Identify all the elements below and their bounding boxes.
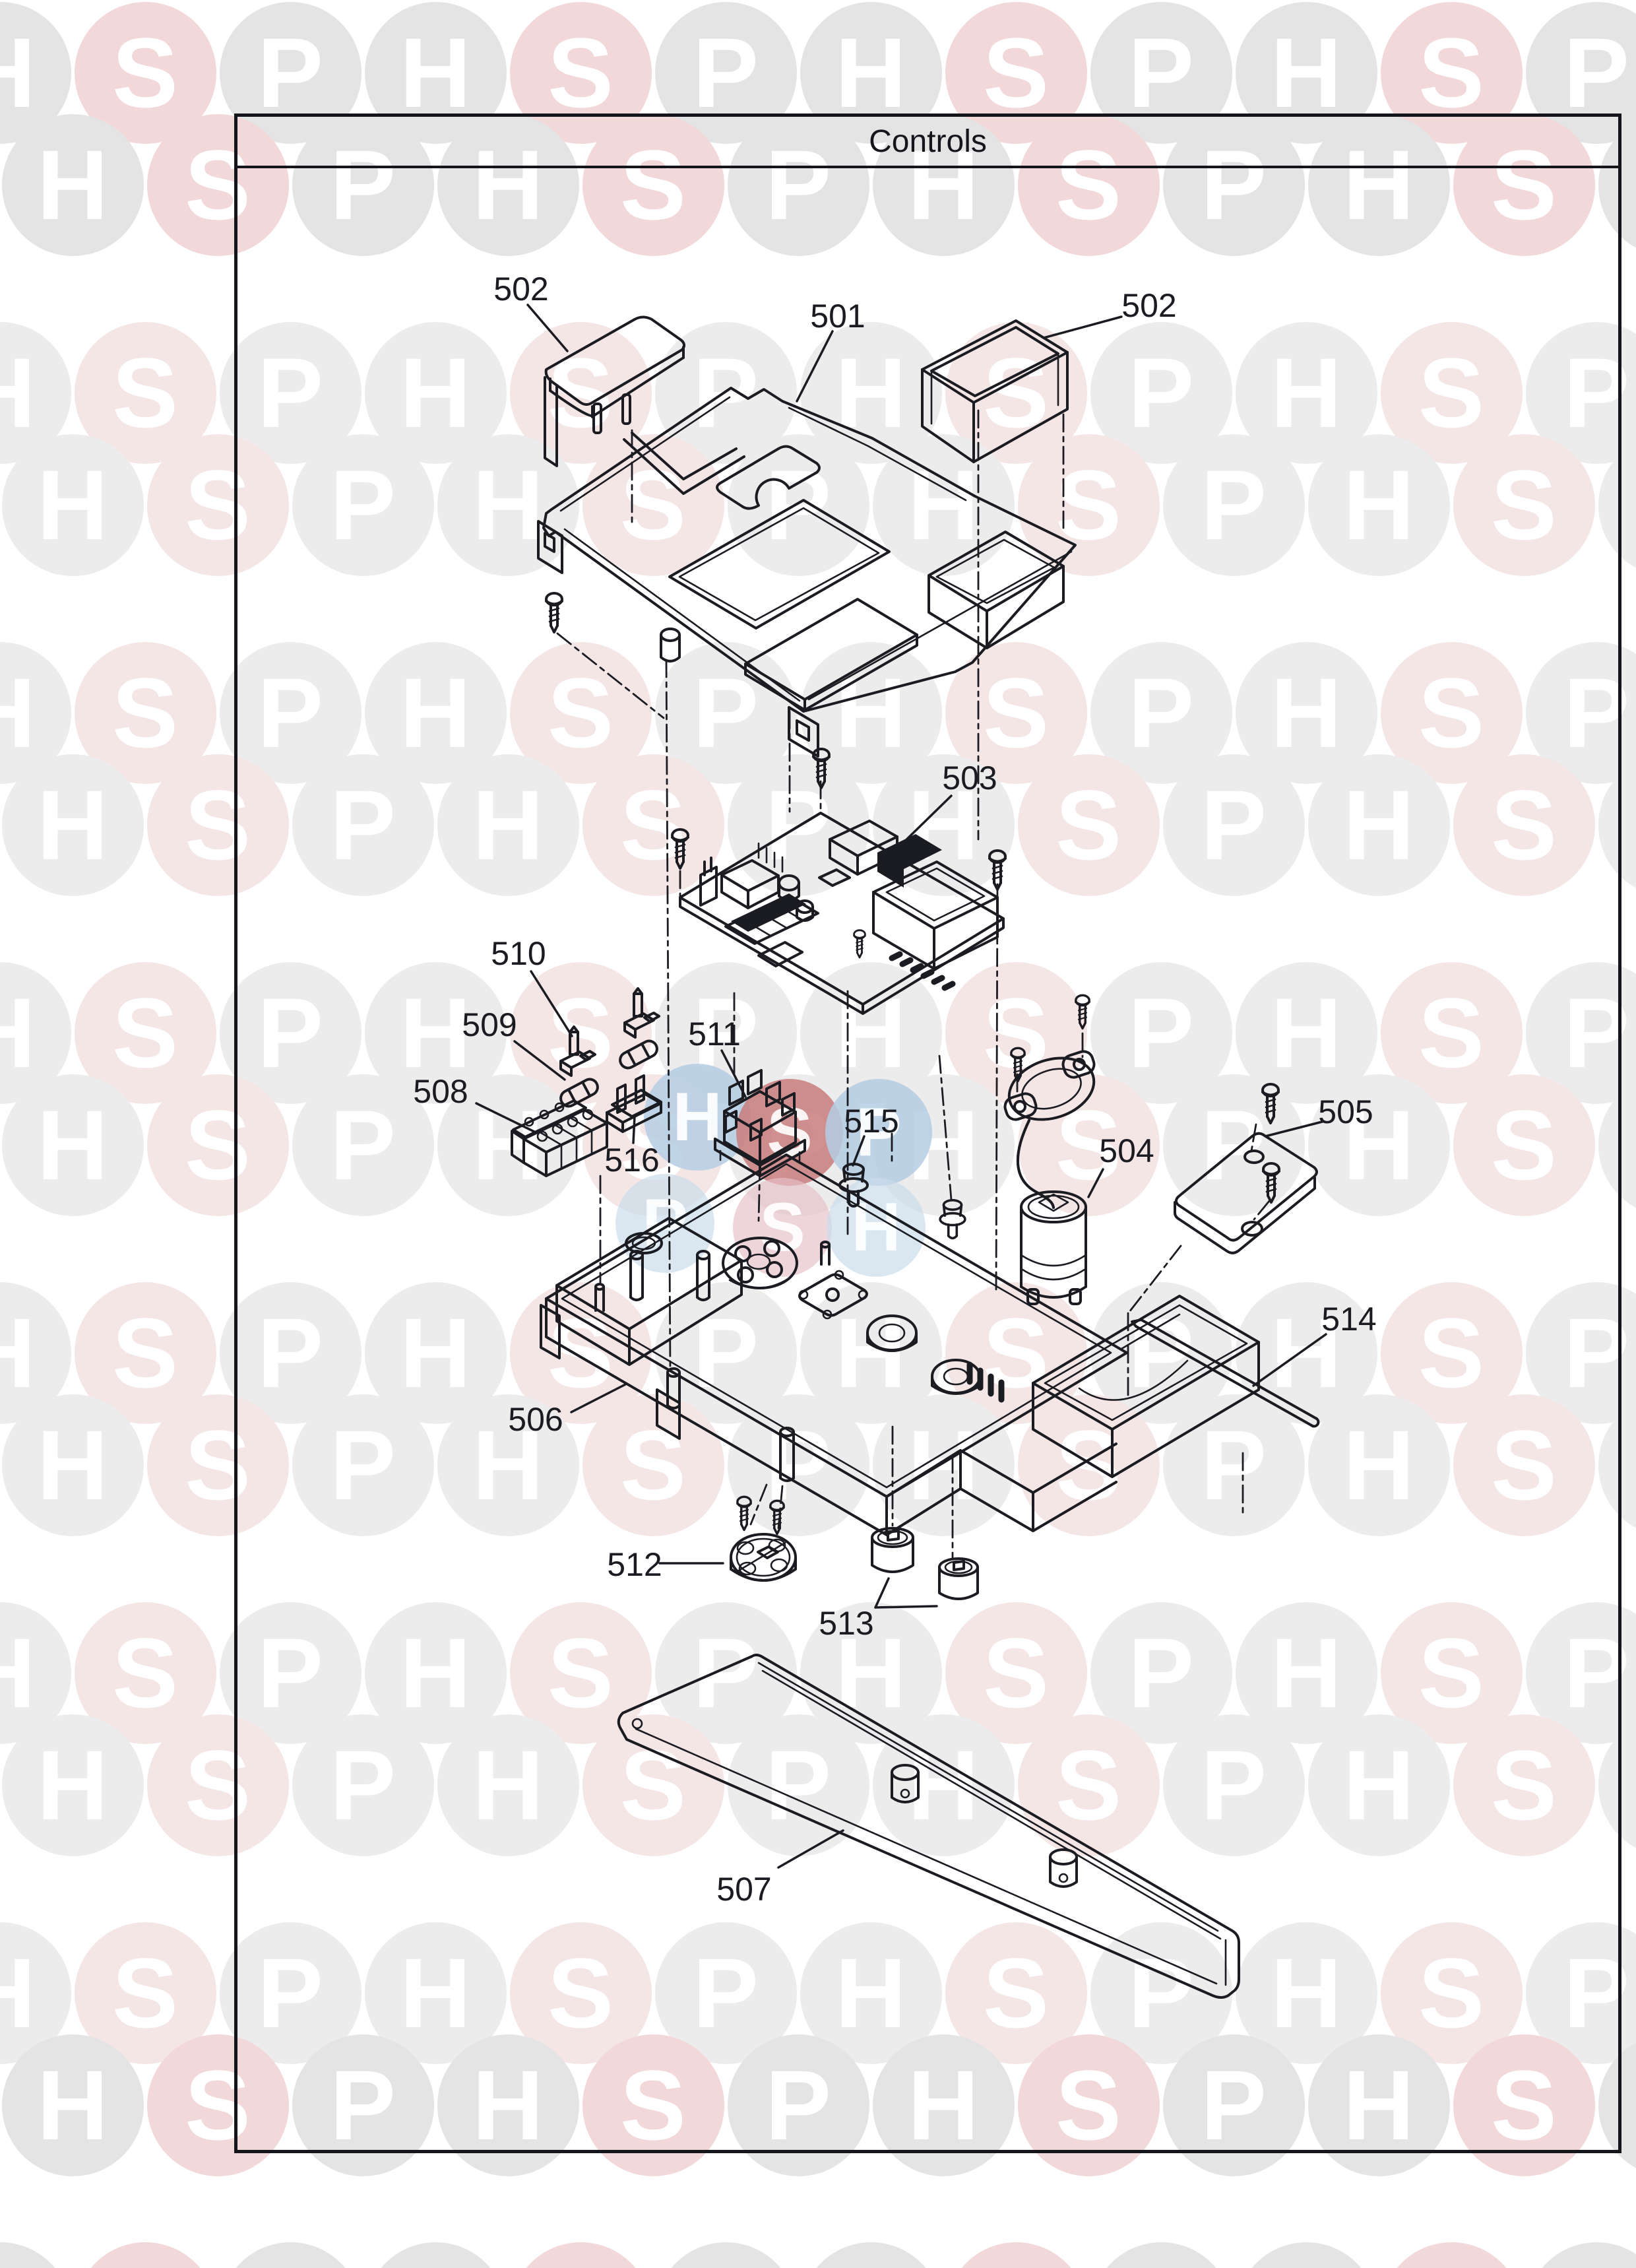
parts-diagram-page: HSPHSPHSPHSPHSPHSPHSPHSPHSPHSPHSPHSPHSPH… bbox=[0, 0, 1636, 2268]
diagram-frame: Controls bbox=[234, 113, 1621, 2153]
title-bar: Controls bbox=[237, 117, 1618, 168]
page-title: Controls bbox=[869, 123, 987, 160]
